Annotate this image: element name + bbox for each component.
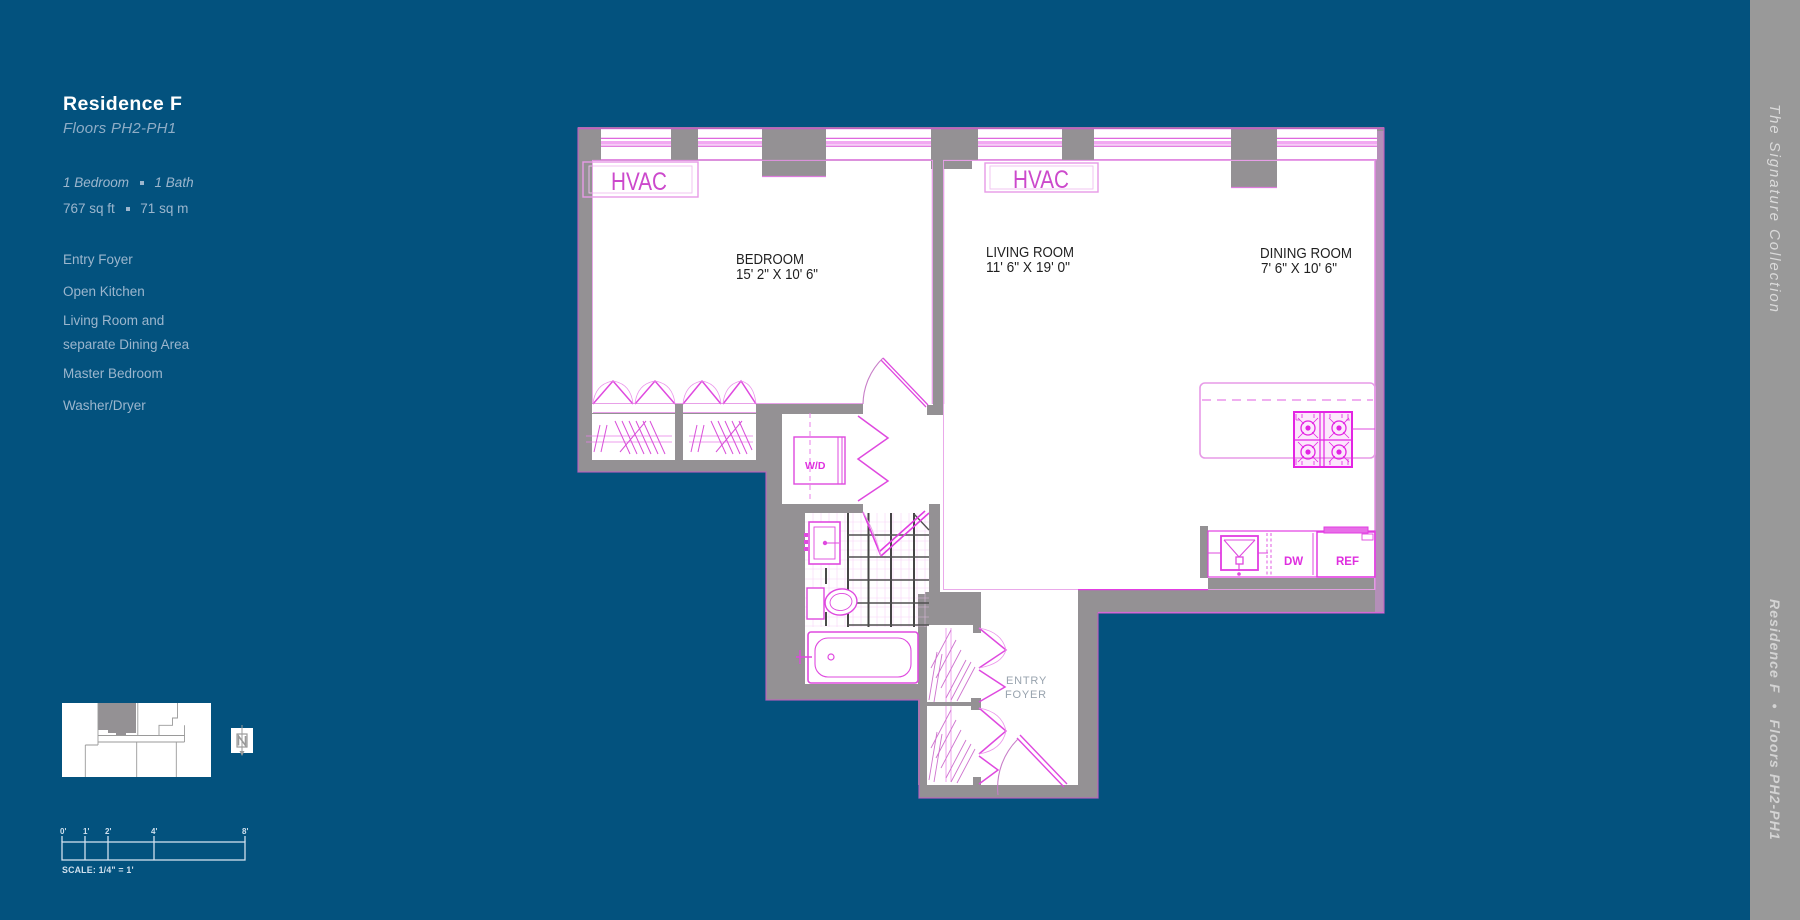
- svg-text:FOYER: FOYER: [1005, 689, 1047, 701]
- svg-text:REF: REF: [1336, 556, 1359, 568]
- svg-text:HVAC: HVAC: [1013, 166, 1069, 194]
- svg-text:2': 2': [105, 827, 111, 836]
- svg-text:11' 6" X 19' 0": 11' 6" X 19' 0": [986, 259, 1070, 276]
- svg-text:W/D: W/D: [805, 460, 826, 472]
- svg-text:ENTRY: ENTRY: [1006, 675, 1047, 687]
- svg-text:HVAC: HVAC: [611, 168, 667, 196]
- svg-text:1': 1': [83, 827, 89, 836]
- svg-text:SCALE: 1/4" = 1': SCALE: 1/4" = 1': [62, 865, 134, 875]
- svg-text:8': 8': [242, 827, 248, 836]
- svg-text:4': 4': [151, 827, 157, 836]
- svg-text:0': 0': [60, 827, 66, 836]
- svg-text:15' 2" X 10' 6": 15' 2" X 10' 6": [736, 266, 818, 283]
- svg-text:7' 6" X 10' 6": 7' 6" X 10' 6": [1261, 260, 1337, 277]
- svg-text:DW: DW: [1284, 556, 1303, 568]
